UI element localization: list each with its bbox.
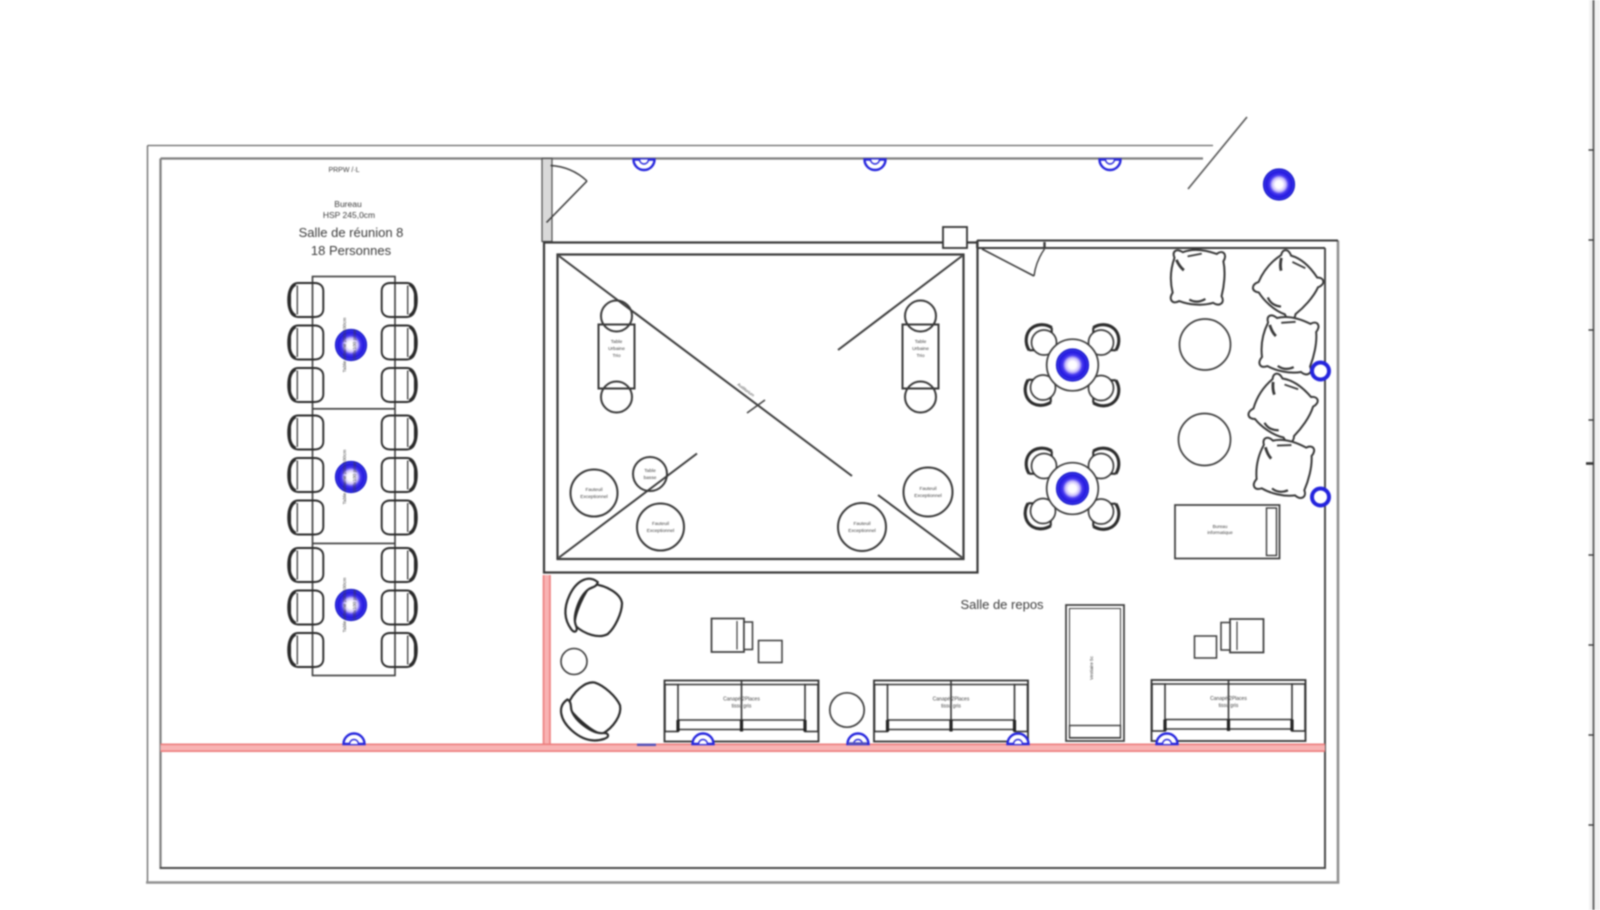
svg-text:Canapé 2Places: Canapé 2Places <box>1210 696 1247 702</box>
svg-text:Bureau: Bureau <box>334 199 362 209</box>
svg-text:Table urbaine 200x100cm: Table urbaine 200x100cm <box>342 578 348 633</box>
svg-text:tissu gris: tissu gris <box>941 704 961 710</box>
svg-text:Exceptionnel: Exceptionnel <box>914 493 941 499</box>
svg-text:Table: Table <box>611 339 623 345</box>
svg-text:Fauteuil: Fauteuil <box>919 486 936 492</box>
svg-text:Urbaine: Urbaine <box>912 346 929 352</box>
svg-text:200x100 prise: 200x100 prise <box>352 590 358 620</box>
svg-text:200x100 prise: 200x100 prise <box>352 462 358 492</box>
svg-text:Exceptionnel: Exceptionnel <box>580 494 607 500</box>
svg-text:Bureau: Bureau <box>1213 524 1228 529</box>
svg-text:HSP 245,0cm: HSP 245,0cm <box>323 210 375 220</box>
svg-text:Salle de réunion 8: Salle de réunion 8 <box>299 225 404 240</box>
svg-text:Table urbaine 200x100cm: Table urbaine 200x100cm <box>342 318 348 373</box>
svg-text:PRPW /·L: PRPW /·L <box>328 167 359 174</box>
svg-text:Table: Table <box>644 468 656 474</box>
svg-text:Vestiaire 5c: Vestiaire 5c <box>1089 655 1094 679</box>
svg-text:Trio: Trio <box>612 353 620 359</box>
svg-text:basse: basse <box>644 475 657 481</box>
svg-text:Salle de repos: Salle de repos <box>960 597 1044 612</box>
svg-text:Trio: Trio <box>916 353 924 359</box>
svg-text:Fauteuil: Fauteuil <box>853 521 870 527</box>
svg-text:Table: Table <box>915 339 927 345</box>
svg-text:Canapé 2Places: Canapé 2Places <box>723 697 760 703</box>
svg-text:Fauteuil: Fauteuil <box>652 521 669 527</box>
svg-text:Exceptionnel: Exceptionnel <box>848 528 875 534</box>
svg-text:tissu gris: tissu gris <box>1219 703 1239 709</box>
svg-text:Exceptionnel: Exceptionnel <box>647 528 674 534</box>
svg-text:Fauteuil: Fauteuil <box>585 487 602 493</box>
svg-text:Urbaine: Urbaine <box>608 346 625 352</box>
svg-text:informatique: informatique <box>1207 530 1233 535</box>
svg-text:tissu gris: tissu gris <box>732 704 752 710</box>
svg-text:200x100 prise: 200x100 prise <box>352 330 358 360</box>
svg-text:18 Personnes: 18 Personnes <box>311 243 392 258</box>
svg-text:Canapé 2Places: Canapé 2Places <box>933 697 970 703</box>
svg-text:Table urbaine 200x100cm: Table urbaine 200x100cm <box>342 450 348 505</box>
